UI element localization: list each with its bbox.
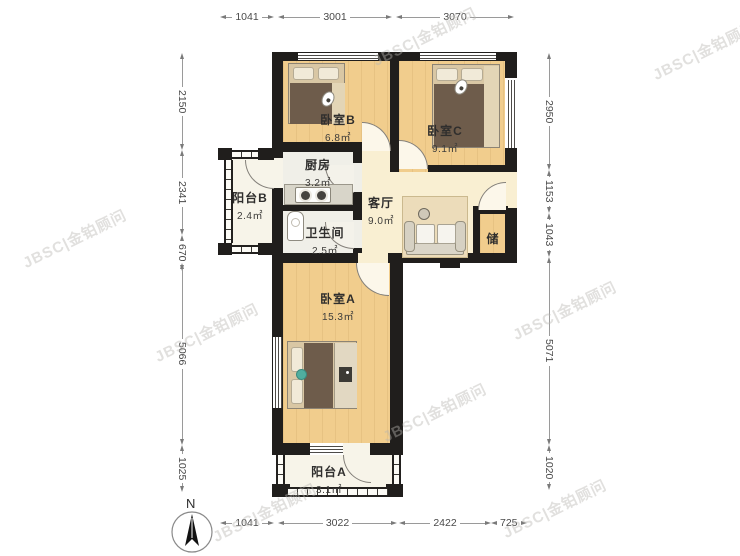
dim-line [549, 126, 550, 164]
dim-value: 1020 [543, 453, 555, 482]
burner [301, 191, 310, 200]
dim-line [549, 250, 550, 251]
threshold-bedroomA [356, 253, 388, 263]
dim-line [460, 523, 485, 524]
sofa-armrest [455, 221, 466, 252]
sofa-cushion [416, 224, 435, 244]
glazing-balconyB-top [232, 150, 258, 159]
bed-pillow [318, 67, 339, 80]
dim-left-1: 2150 [176, 53, 188, 150]
dim-left-3: 670 [176, 235, 188, 263]
dim-line [284, 523, 323, 524]
room-area: 6.8㎡ [298, 129, 378, 144]
glazing-balconyA-right [392, 455, 401, 484]
room-name: 储 [479, 230, 507, 247]
dim-value: 1153 [543, 177, 555, 206]
bed-bedroomA [287, 341, 357, 409]
bed-pillow [293, 67, 314, 80]
tv-dot [346, 371, 349, 374]
coffee-table [418, 208, 430, 220]
wall-bedroomA-bottom-a [272, 443, 310, 455]
block-balconyA-br [386, 484, 403, 497]
dim-left-2: 2341 [176, 150, 188, 235]
block-balconyB-bl [218, 243, 232, 255]
room-name: 阳台A [294, 463, 364, 480]
lamp-dot [326, 98, 331, 103]
window-bedroomC-top [420, 53, 496, 60]
dim-line [352, 523, 391, 524]
room-name: 卧室A [298, 290, 378, 307]
floor-plan-page: { "watermark": { "text": "JBSC|金铂顾问" }, … [0, 0, 740, 555]
dim-right-4: 5071 [543, 257, 555, 445]
room-name: 厨房 [289, 156, 347, 173]
room-area: 9.1㎡ [405, 140, 485, 155]
threshold-entry [505, 172, 517, 210]
dim-line [182, 156, 183, 178]
dim-line [549, 366, 550, 439]
dim-bottom-2: 3022 [278, 517, 397, 529]
window-bedroomA-left [273, 337, 282, 408]
room-label-living: 客厅 9.0㎡ [351, 194, 411, 227]
bed-side-strip [484, 66, 499, 147]
bed-duvet [304, 343, 333, 408]
dim-line [284, 17, 320, 18]
dim-value: 2422 [430, 517, 459, 529]
lamp-dot [459, 86, 464, 91]
dim-value: 1025 [176, 454, 188, 483]
dim-line [350, 17, 386, 18]
dim-line [182, 59, 183, 87]
room-area: 9.0㎡ [351, 212, 411, 227]
wall-bedroomC-bottom [428, 165, 505, 172]
dim-right-1: 2950 [543, 53, 555, 170]
dim-value: 5071 [543, 336, 555, 365]
block-balconyB-tl [218, 148, 232, 160]
dim-top-2: 3001 [278, 11, 392, 23]
dim-line [182, 269, 183, 339]
block-balconyB-br [258, 243, 274, 255]
watermark: JBSC|金铂顾问 [151, 298, 262, 367]
floor-plan-canvas: 卧室B 6.8㎡ 卧室C 9.1㎡ 厨房 3.2㎡ 阳台B 2.4㎡ 卫生间 2… [0, 0, 740, 555]
dim-right-5: 1020 [543, 445, 555, 490]
dim-line [182, 483, 183, 486]
room-area: 15.3㎡ [298, 308, 378, 323]
bed-pillow [436, 68, 458, 81]
wall-kitchen-bath-divider [274, 205, 353, 211]
burner [317, 191, 326, 200]
window-bedroomA-balcony [310, 444, 343, 454]
teal-cushion [296, 369, 307, 380]
dim-value: 2341 [176, 178, 188, 207]
dim-bottom-3: 2422 [399, 517, 491, 529]
watermark: JBSC|金铂顾问 [19, 204, 130, 273]
dim-line [262, 17, 268, 18]
dim-line [549, 482, 550, 484]
glazing-balconyA-left [276, 455, 285, 484]
dim-value: 670 [176, 241, 188, 265]
watermark: JBSC|金铂顾问 [509, 276, 620, 345]
dim-line [549, 206, 550, 207]
block-balconyB-tr [258, 148, 274, 160]
room-area: 2.4㎡ [221, 207, 279, 222]
room-area: 3.2㎡ [289, 174, 347, 189]
room-label-storage: 储 [479, 230, 507, 247]
dim-right-2: 1153 [543, 170, 555, 213]
dim-line [402, 17, 440, 18]
dim-line [549, 59, 550, 97]
room-label-balconyB: 阳台B 2.4㎡ [221, 189, 279, 222]
room-name: 阳台B [221, 189, 279, 206]
tv-icon [339, 367, 352, 382]
dim-value: 1041 [232, 11, 261, 23]
sofa [404, 220, 466, 256]
bed-pillow [291, 379, 303, 404]
dim-value: 2150 [176, 87, 188, 116]
room-area: 2.5㎡ [290, 242, 360, 257]
wall-divider-BC [390, 52, 399, 172]
stove [295, 187, 331, 203]
threshold-kitchen [353, 163, 362, 192]
dim-top-1: 1041 [220, 11, 274, 23]
sofa-cushion [437, 224, 456, 244]
dim-line [182, 369, 183, 439]
dim-line [182, 207, 183, 229]
room-name: 卫生间 [290, 224, 360, 241]
room-name: 卧室C [405, 122, 485, 139]
wall-corridor-a [353, 142, 362, 163]
wall-right-a [505, 52, 517, 78]
dim-line [405, 523, 430, 524]
room-name: 卧室B [298, 111, 378, 128]
dim-value: 2950 [543, 97, 555, 126]
room-label-bathroom: 卫生间 2.5㎡ [290, 224, 360, 257]
room-label-kitchen: 厨房 3.2㎡ [289, 156, 347, 189]
threshold-balconyA [343, 443, 370, 455]
room-label-bedroomB: 卧室B 6.8㎡ [298, 111, 378, 144]
dim-left-5: 1025 [176, 445, 188, 492]
wall-right-b [505, 148, 517, 172]
dim-value: 3001 [320, 11, 349, 23]
glazing-balconyB-bottom [232, 245, 258, 254]
dim-value: 1043 [543, 220, 555, 249]
dim-value: 3022 [323, 517, 352, 529]
room-label-bedroomA: 卧室A 15.3㎡ [298, 290, 378, 323]
dim-line [182, 116, 183, 144]
window-bedroomC-right [506, 80, 516, 148]
window-bedroomB-top [298, 53, 378, 60]
dim-right-3: 1043 [543, 213, 555, 257]
room-label-bedroomC: 卧室C 9.1㎡ [405, 122, 485, 155]
room-name: 客厅 [351, 194, 411, 211]
watermark: JBSC|金铂顾问 [649, 16, 740, 85]
